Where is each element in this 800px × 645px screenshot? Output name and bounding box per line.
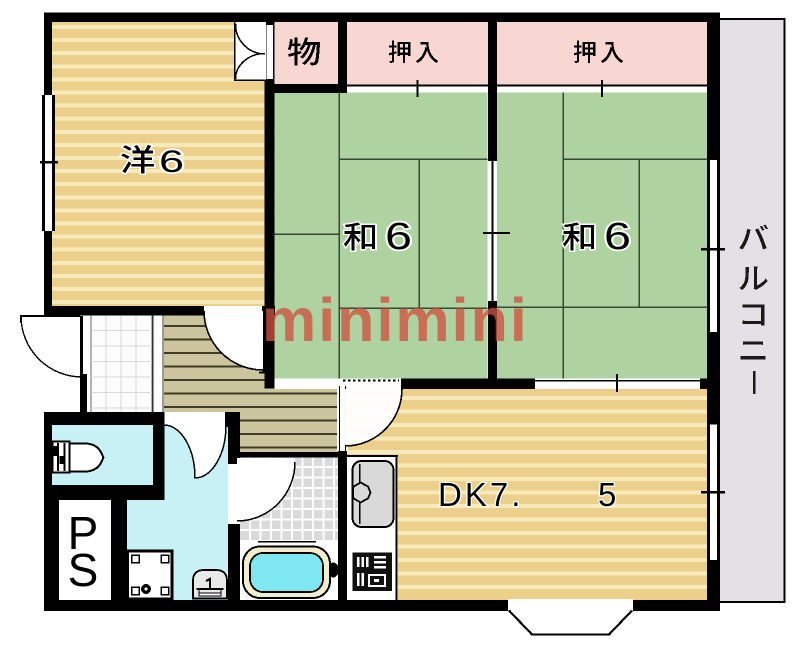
svg-text:minimini: minimini [262, 286, 529, 354]
svg-text:S: S [68, 544, 99, 596]
svg-text:6: 6 [159, 143, 184, 179]
svg-text:6: 6 [604, 216, 631, 258]
svg-text:5: 5 [598, 476, 616, 513]
svg-text:6: 6 [385, 216, 412, 258]
svg-text:DK7.: DK7. [438, 476, 523, 513]
